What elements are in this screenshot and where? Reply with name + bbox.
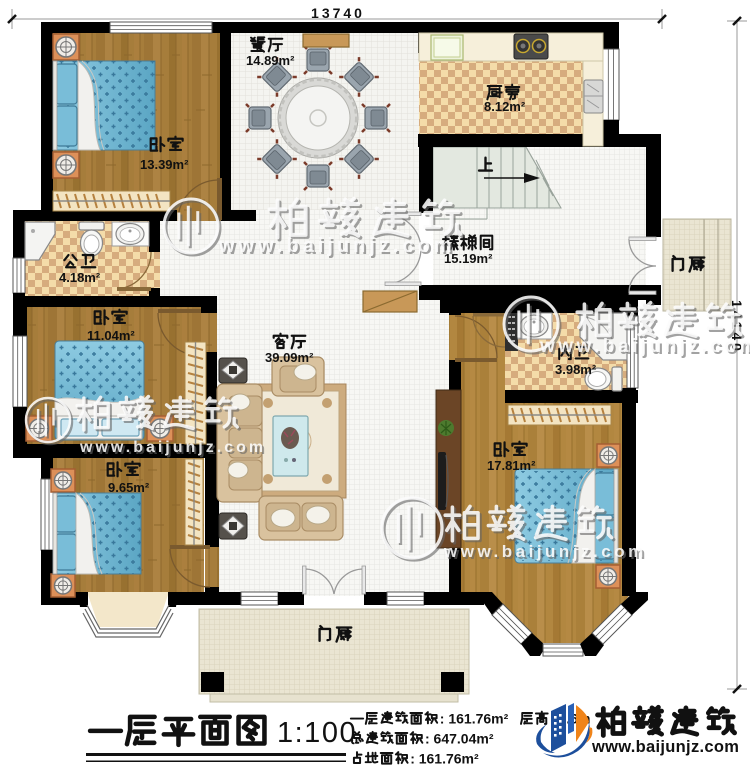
svg-text:1:100: 1:100	[277, 717, 357, 749]
svg-text:13740: 13740	[311, 5, 365, 21]
svg-text:www.baijunjz.com: www.baijunjz.com	[539, 336, 750, 357]
svg-text:3.98m²: 3.98m²	[555, 362, 597, 377]
svg-text:www.baijunjz.com: www.baijunjz.com	[79, 439, 266, 456]
svg-text:17.81m²: 17.81m²	[487, 458, 536, 473]
svg-text:4.18m²: 4.18m²	[59, 270, 101, 285]
svg-text:9.65m²: 9.65m²	[108, 480, 150, 495]
svg-text:14.89m²: 14.89m²	[246, 53, 295, 68]
svg-text:: 647.04m²: : 647.04m²	[425, 731, 494, 747]
svg-text:www.baijunjz.com: www.baijunjz.com	[218, 235, 456, 257]
svg-text:www.baijunjz.com: www.baijunjz.com	[443, 542, 647, 561]
svg-text:39.09m²: 39.09m²	[265, 350, 314, 365]
svg-text:: 161.76m²: : 161.76m²	[410, 751, 479, 767]
svg-text:www.baijunjz.com: www.baijunjz.com	[591, 738, 739, 756]
svg-text:: 161.76m²: : 161.76m²	[440, 711, 509, 727]
svg-text:13.39m²: 13.39m²	[140, 157, 189, 172]
svg-text:8.12m²: 8.12m²	[484, 99, 526, 114]
svg-text:11.04m²: 11.04m²	[87, 328, 135, 343]
